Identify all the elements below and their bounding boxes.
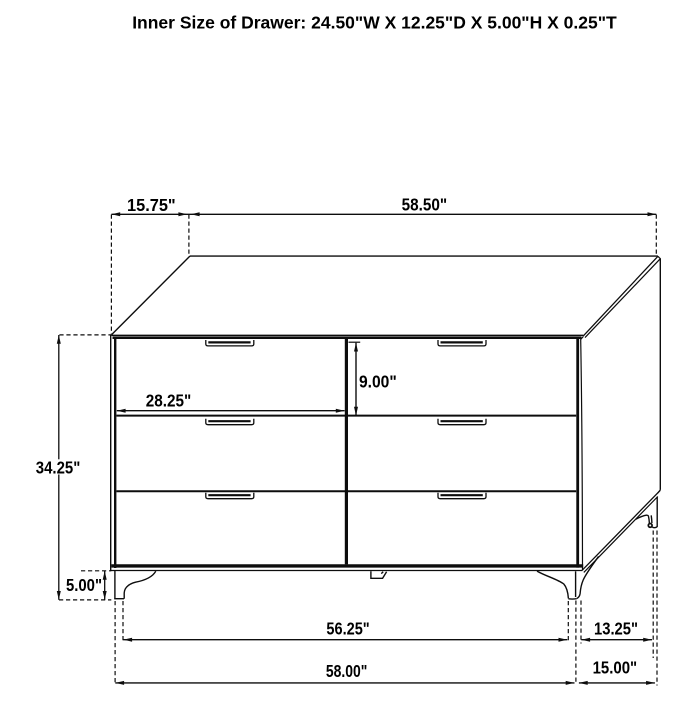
svg-text:34.25": 34.25" (36, 457, 81, 477)
svg-text:15.75": 15.75" (127, 195, 176, 215)
svg-text:9.00": 9.00" (359, 372, 397, 392)
svg-text:Inner Size of Drawer: 24.50"W: Inner Size of Drawer: 24.50"W X 12.25"D … (132, 13, 617, 33)
svg-text:58.50": 58.50" (402, 195, 448, 215)
svg-text:13.25": 13.25" (594, 618, 638, 638)
svg-text:5.00": 5.00" (66, 575, 102, 595)
svg-text:58.00": 58.00" (326, 661, 367, 681)
svg-text:15.00": 15.00" (593, 658, 638, 678)
svg-text:56.25": 56.25" (326, 618, 369, 638)
svg-text:28.25": 28.25" (146, 390, 192, 410)
